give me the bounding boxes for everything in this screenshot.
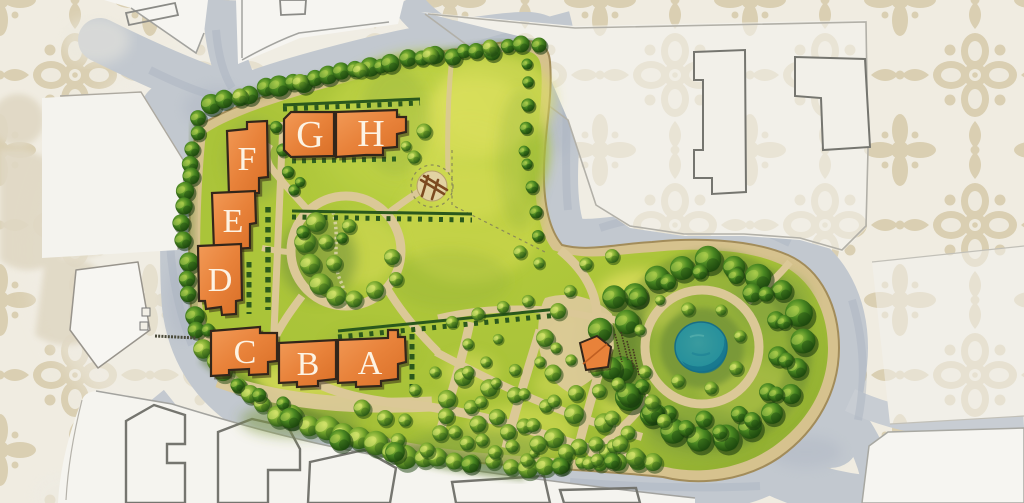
svg-text:G: G (296, 114, 323, 156)
svg-text:B: B (297, 346, 320, 383)
svg-text:A: A (358, 345, 383, 382)
svg-text:C: C (234, 334, 257, 371)
svg-text:H: H (357, 113, 384, 155)
svg-text:F: F (238, 141, 257, 178)
svg-text:D: D (208, 262, 233, 299)
svg-text:E: E (223, 203, 244, 240)
